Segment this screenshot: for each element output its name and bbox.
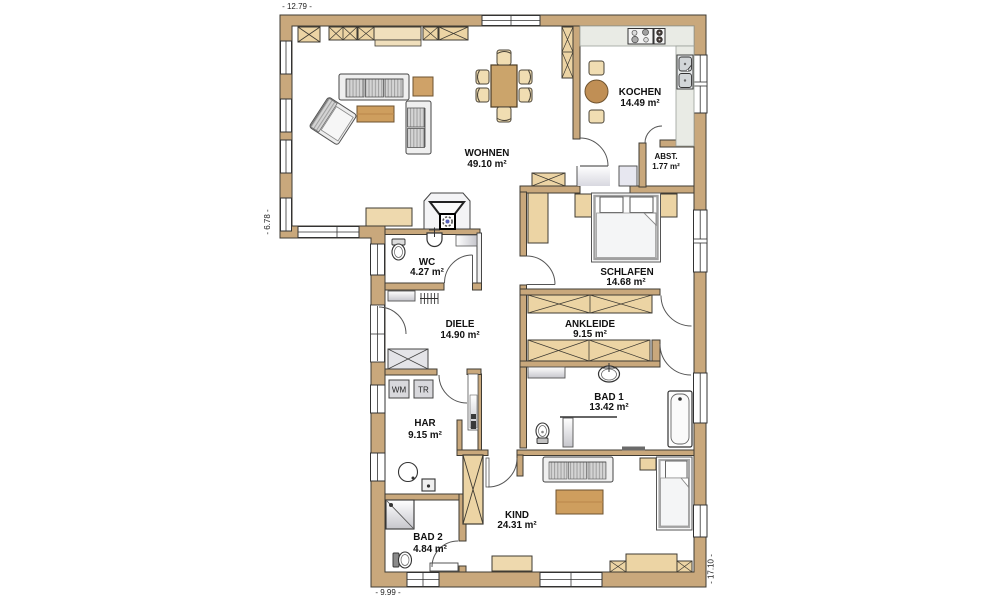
svg-text:1.77 m²: 1.77 m² — [652, 162, 680, 171]
svg-text:HAR: HAR — [414, 418, 435, 429]
svg-text:4.84 m²: 4.84 m² — [413, 544, 448, 555]
svg-text:WOHNEN: WOHNEN — [465, 148, 510, 159]
svg-text:14.68 m²: 14.68 m² — [606, 277, 646, 288]
svg-text:TR: TR — [418, 386, 429, 395]
svg-text:14.49 m²: 14.49 m² — [620, 98, 660, 109]
svg-text:WM: WM — [392, 386, 407, 395]
svg-text:- 9.99 -: - 9.99 - — [375, 588, 401, 597]
svg-text:9.15 m²: 9.15 m² — [573, 329, 608, 340]
svg-text:ABST.: ABST. — [654, 152, 677, 161]
svg-text:DIELE: DIELE — [446, 319, 475, 330]
svg-text:14.90 m²: 14.90 m² — [440, 330, 480, 341]
svg-text:24.31 m²: 24.31 m² — [497, 520, 537, 531]
svg-text:- 17.10 -: - 17.10 - — [707, 554, 716, 584]
svg-text:- 6.78 -: - 6.78 - — [263, 209, 272, 235]
svg-text:13.42 m²: 13.42 m² — [589, 402, 629, 413]
svg-text:9.15 m²: 9.15 m² — [408, 430, 443, 441]
svg-text:- 12.79 -: - 12.79 - — [282, 2, 312, 11]
svg-text:BAD 2: BAD 2 — [413, 532, 443, 543]
svg-text:KOCHEN: KOCHEN — [619, 87, 661, 98]
svg-text:4.27 m²: 4.27 m² — [410, 267, 445, 278]
svg-text:49.10 m²: 49.10 m² — [467, 159, 507, 170]
